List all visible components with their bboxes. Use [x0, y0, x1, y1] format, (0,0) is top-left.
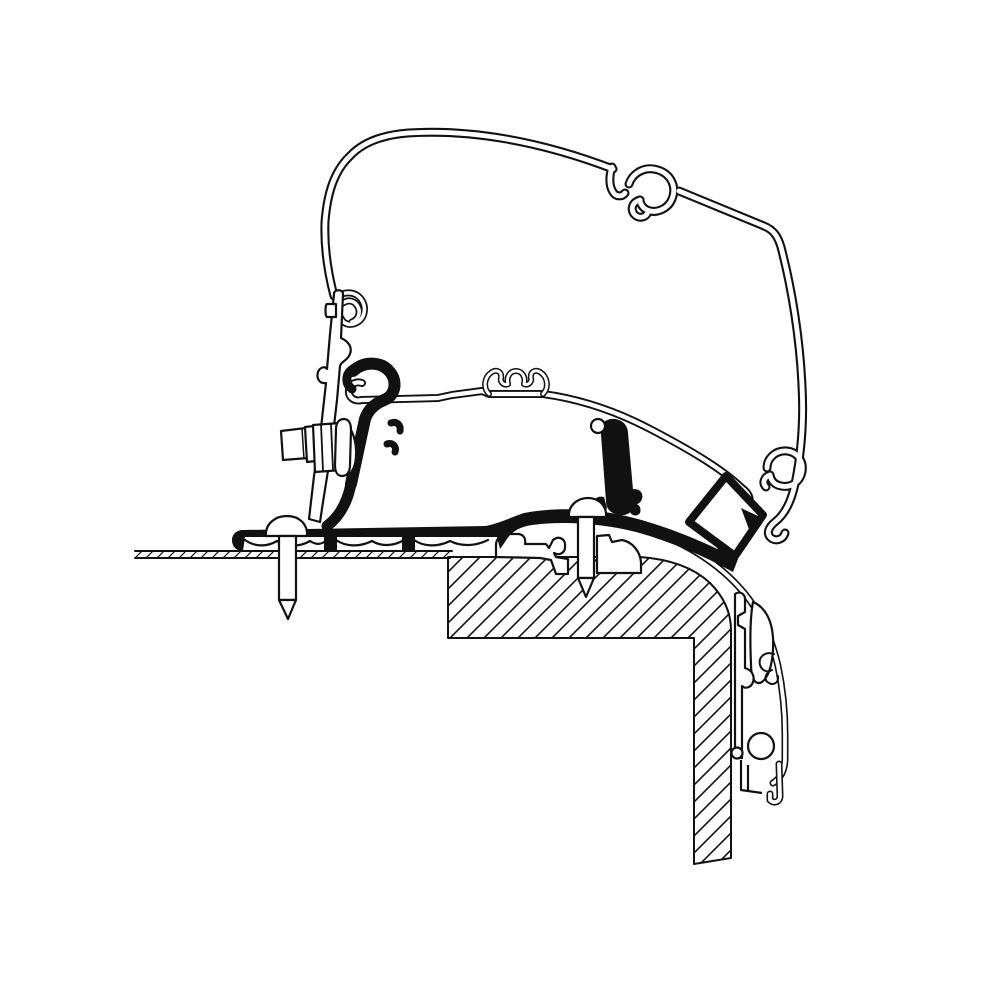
- roof-screw-left: [266, 516, 307, 619]
- bracket-left-tab: [326, 304, 337, 317]
- trim-circular-channel: [748, 733, 774, 759]
- seal-vertical-support: [601, 419, 634, 515]
- lower-adapter-rail: [349, 371, 755, 520]
- screw-shaft: [578, 517, 594, 578]
- screw-tip: [279, 600, 296, 619]
- technical-diagram-page: Cross-section technical line drawing of …: [0, 0, 1000, 1000]
- trim-fork-foot: [741, 760, 762, 793]
- screw-head: [266, 516, 307, 536]
- hex-bolt: [281, 419, 351, 476]
- awning-adapter-cross-section: Cross-section technical line drawing of …: [0, 0, 1000, 1000]
- seal-notch: [591, 419, 605, 433]
- screw-shaft: [279, 536, 296, 600]
- roof-corner-block-and-side-wall: [448, 557, 731, 864]
- bolt-washer: [335, 419, 351, 476]
